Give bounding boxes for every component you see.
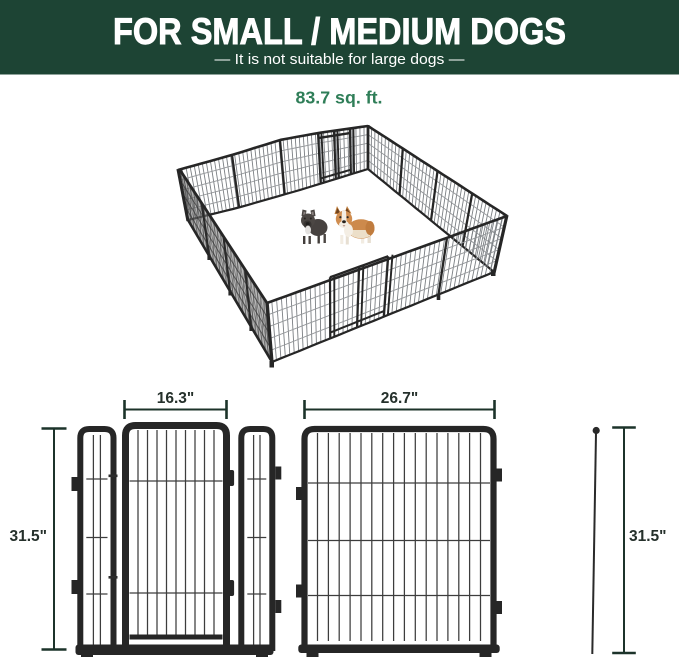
svg-text:16.3": 16.3" (157, 390, 195, 407)
svg-text:FOR SMALL / MEDIUM DOGS: FOR SMALL / MEDIUM DOGS (113, 11, 566, 52)
svg-text:— It is not suitable for larg: — It is not suitable for large dogs — (215, 52, 466, 68)
svg-text:31.5": 31.5" (9, 528, 47, 545)
svg-text:83.7 sq. ft.: 83.7 sq. ft. (296, 88, 383, 108)
svg-text:31.5": 31.5" (629, 528, 667, 545)
svg-text:26.7": 26.7" (381, 390, 419, 407)
